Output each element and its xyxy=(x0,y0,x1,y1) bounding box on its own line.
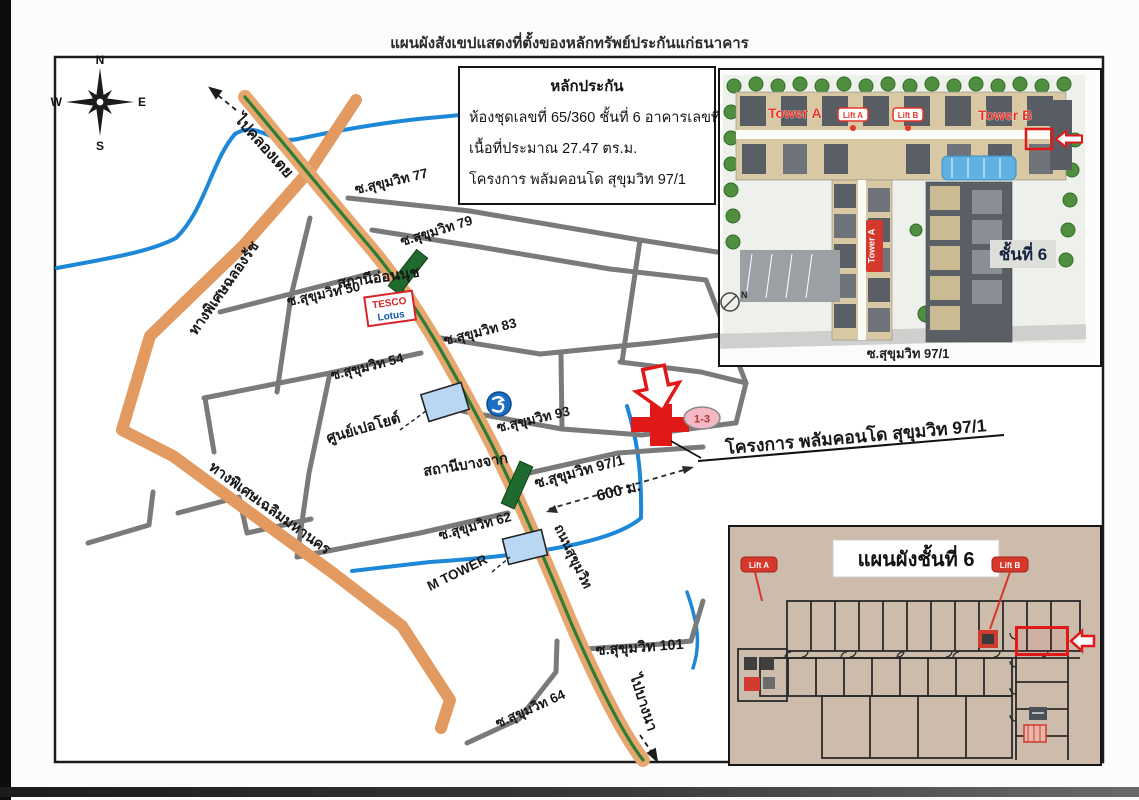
floor-plan-cores xyxy=(744,630,1047,742)
compass-e: E xyxy=(138,95,146,109)
svg-text:N: N xyxy=(741,290,748,300)
site-plan-inset: Tower A Tower B Lift A Lift B Tower A xyxy=(718,68,1102,367)
site-floor-badge: ชั้นที่ 6 xyxy=(990,240,1056,268)
svg-text:Lift B: Lift B xyxy=(1000,561,1021,570)
floor-plan-doors xyxy=(785,633,1048,721)
floor-plan-title: แผนผังชั้นที่ 6 xyxy=(858,544,975,571)
site-pool xyxy=(942,156,1016,180)
site-tower-b-label: Tower B xyxy=(978,107,1032,123)
collateral-info-box: หลักประกัน ห้องชุดเลขที่ 65/360 ชั้นที่ … xyxy=(458,66,716,205)
site-tower-a-label: Tower A xyxy=(768,105,822,121)
floor-lift-b-label: Lift B xyxy=(990,557,1028,629)
site-tower-a-wing-label: Tower A xyxy=(866,220,883,272)
svg-text:Lift A: Lift A xyxy=(749,561,769,570)
collateral-area-line: เนื้อที่ประมาณ 27.47 ตร.ม. xyxy=(469,137,705,160)
scanned-map-page: แผนผังสังเขปแสดงที่ตั้งของหลักทรัพย์ประก… xyxy=(0,0,1139,800)
blue-circle-logo-icon xyxy=(487,392,511,416)
page-title: แผนผังสังเขปแสดงที่ตั้งของหลักทรัพย์ประก… xyxy=(0,31,1139,55)
unit-range-label: 1-3 xyxy=(694,414,710,426)
collateral-project-line: โครงการ พลัมคอนโด สุขุมวิท 97/1 xyxy=(469,168,705,191)
floor-plan-drawing: แผนผังชั้นที่ 6 xyxy=(730,527,1096,760)
floor-unit-marker xyxy=(1017,628,1068,655)
tesco-lotus-logo: TESCO Lotus xyxy=(364,291,416,326)
floor-unit-arrow-icon xyxy=(1071,631,1094,651)
site-parking xyxy=(740,250,840,302)
site-plan-drawing: Tower A Tower B Lift A Lift B Tower A xyxy=(720,70,1096,361)
svg-text:ชั้นที่ 6: ชั้นที่ 6 xyxy=(999,241,1048,264)
floor-plan-inset: แผนผังชั้นที่ 6 xyxy=(728,525,1102,766)
svg-text:Lift A: Lift A xyxy=(843,111,863,120)
scan-edge-artifact-left xyxy=(0,0,11,800)
site-road-label: ซ.สุขุมวิท 97/1 xyxy=(867,346,950,361)
svg-text:Tower A: Tower A xyxy=(867,228,877,263)
compass-n: N xyxy=(96,53,105,67)
collateral-heading: หลักประกัน xyxy=(469,74,705,98)
scan-edge-artifact-bottom xyxy=(0,787,1139,797)
compass-s: S xyxy=(96,139,104,153)
collateral-unit-line: ห้องชุดเลขที่ 65/360 ชั้นที่ 6 อาคารเลขท… xyxy=(469,106,705,129)
svg-text:Lift B: Lift B xyxy=(898,111,919,120)
compass-w: W xyxy=(51,95,63,109)
floor-plan-title-box: แผนผังชั้นที่ 6 xyxy=(833,540,999,577)
floor-lift-a-label: Lift A xyxy=(741,557,777,601)
